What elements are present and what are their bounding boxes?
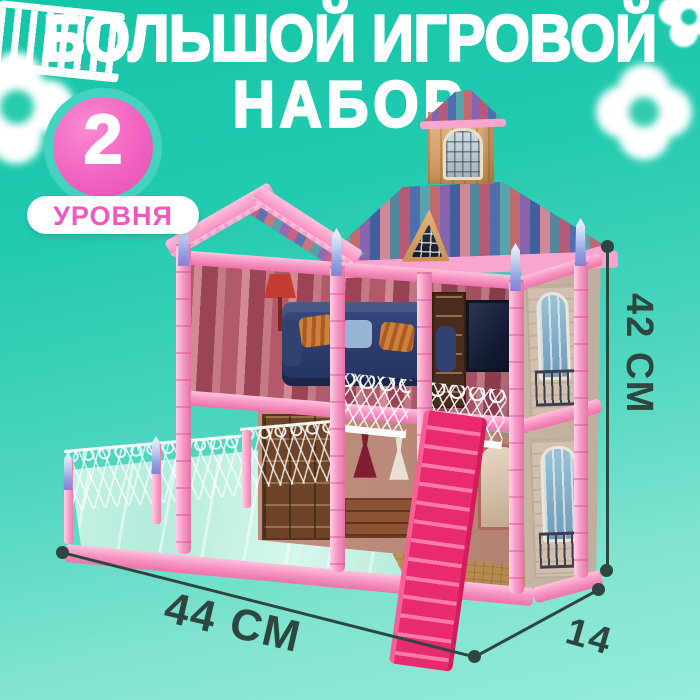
sofa-armrest [436,326,456,372]
tower-window [443,128,483,180]
dimension-dot [601,240,614,253]
garden-post [242,430,251,508]
column-front-left [176,244,191,554]
height-dimension-label: 42 СМ [617,293,660,414]
levels-badge-label: УРОВНЯ [27,201,199,232]
column-front-right [509,280,524,594]
dimension-dot [600,564,613,577]
window-balcony-rail [535,369,576,406]
height-dimension-line [606,246,609,572]
column-front-mid-left [330,266,345,572]
pillow [379,321,416,352]
gable-fascia-right [251,185,364,267]
product-image: БОЛЬШОЙ ИГРОВОЙ НАБОР 2 УРОВНЯ [0,0,700,700]
dimension-dot [592,583,605,596]
balcony-balustrade [0,0,125,83]
pillow [342,320,372,348]
column-rear-right [574,262,588,578]
dimension-dot [56,546,69,559]
garden-fence [240,420,339,489]
levels-badge-number: 2 [53,99,153,179]
window-arch [536,291,571,380]
